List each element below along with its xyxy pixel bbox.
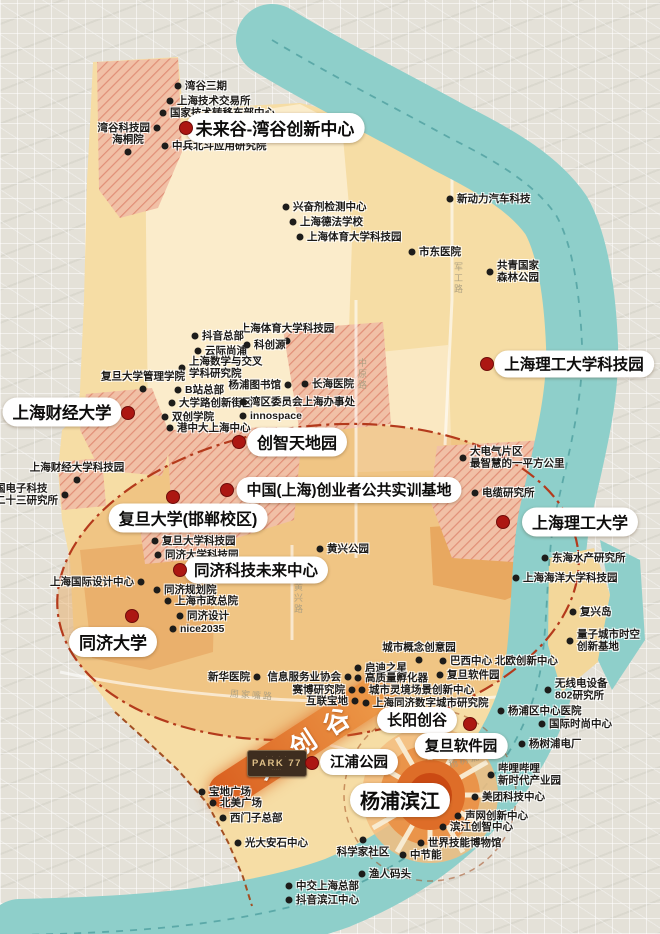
poi-dot (175, 83, 182, 90)
major-pill: 上海理工大学 (522, 508, 638, 537)
poi-label: 大电气片区 最智慧的一平方公里 (470, 446, 565, 471)
poi-label: 复旦软件园 (447, 669, 500, 681)
poi-label: 港中大上海中心 (177, 422, 251, 434)
poi-label: 互联宝地 (306, 695, 348, 707)
major-pill: 同济大学 (69, 627, 157, 657)
major-pill: 未来谷-湾谷创新中心 (186, 113, 365, 143)
poi-dot (360, 837, 367, 844)
poi-dot (460, 455, 467, 462)
poi-dot (138, 579, 145, 586)
poi-dot (513, 575, 520, 582)
poi-label: 抖音滨江中心 (296, 894, 359, 906)
poi-dot (447, 196, 454, 203)
poi-label: 渔人码头 (369, 868, 411, 880)
major-pill: 创智天地园 (247, 428, 347, 457)
park77-bottom-marks: ····· (272, 769, 283, 773)
poi-dot (154, 587, 161, 594)
poi-dot (355, 675, 362, 682)
poi-label: 海桐院 (112, 134, 144, 146)
poi-dot (498, 708, 505, 715)
poi-label: 高质量孵化器 (365, 672, 428, 684)
poi-dot (416, 657, 423, 664)
poi-label: 量子城市时空 创新基地 (577, 629, 640, 654)
major-pill: 中国(上海)创业者公共实训基地 (237, 477, 462, 503)
poi-label: 杨浦区中心医院 (508, 705, 582, 717)
poi-label: 上海国际设计中心 (50, 576, 134, 588)
poi-label: 杨树浦电厂 (529, 738, 582, 750)
major-dot (121, 406, 135, 420)
poi-dot (409, 249, 416, 256)
poi-label: innospace (250, 410, 302, 422)
poi-dot (192, 333, 199, 340)
poi-label: 新动力汽车科技 (457, 193, 531, 205)
major-dot (179, 121, 193, 135)
poi-label: 湾谷科技园 (98, 122, 151, 134)
poi-label: 哔哩哔哩 新时代产业园 (498, 763, 561, 788)
poi-label: 黄兴公园 (327, 543, 369, 555)
poi-label: 西门子总部 (230, 812, 283, 824)
poi-dot (545, 687, 552, 694)
poi-dot (125, 149, 132, 156)
major-pill: 复旦软件园 (415, 733, 508, 759)
poi-label: 科学家社区 (337, 846, 390, 858)
poi-label: 东海水产研究所 (552, 552, 626, 564)
poi-label: 兴奋剂检测中心 (293, 201, 367, 213)
poi-dot (162, 143, 169, 150)
poi-dot (199, 789, 206, 796)
poi-dot (167, 98, 174, 105)
poi-label: 科创源 (254, 339, 286, 351)
poi-label: 信息服务业协会 (268, 671, 342, 683)
poi-dot (440, 824, 447, 831)
poi-dot (352, 698, 359, 705)
poi-dot (472, 794, 479, 801)
poi-dot (160, 110, 167, 117)
poi-label: 世界技能博物馆 (428, 837, 502, 849)
poi-dot (195, 348, 202, 355)
park77-logo: · · · · PARK 77 ····· (247, 750, 307, 777)
poi-dot (519, 741, 526, 748)
poi-dot (165, 598, 172, 605)
poi-label: 长海医院 (312, 378, 354, 390)
major-dot (232, 435, 246, 449)
poi-label: 光大安石中心 (245, 837, 308, 849)
road-name-label: 黄兴路 (292, 582, 305, 615)
poi-label: 上海德法学校 (300, 216, 363, 228)
poi-dot (152, 538, 159, 545)
major-dot (125, 609, 139, 623)
poi-dot (177, 613, 184, 620)
map-stage: 大创谷 · · · · PARK 77 ····· 军工路中原路黄兴路周家嘴路杨… (0, 0, 660, 934)
poi-dot (567, 638, 574, 645)
poi-dot (472, 490, 479, 497)
poi-label: 上海市政总院 (175, 595, 238, 607)
poi-label: B站总部 (185, 384, 224, 396)
poi-label: 城市灵境场景创新中心 (369, 684, 474, 696)
poi-dot (440, 658, 447, 665)
poi-dot (349, 687, 356, 694)
poi-label: 新华医院 (208, 671, 250, 683)
poi-dot (162, 414, 169, 421)
poi-label: 市东医院 (419, 246, 461, 258)
major-dot (173, 563, 187, 577)
major-pill: 长阳创谷 (377, 707, 457, 733)
fuxing-island (548, 548, 610, 692)
poi-label: 上海数学与交叉 学科研究院 (189, 356, 263, 381)
poi-label: 上海海洋大学科技园 (523, 572, 618, 584)
poi-dot (400, 852, 407, 859)
poi-dot (487, 269, 494, 276)
poi-dot (240, 399, 247, 406)
poi-dot (210, 800, 217, 807)
poi-label: 复旦大学管理学院 (101, 371, 185, 383)
poi-dot (285, 382, 292, 389)
major-dot (496, 515, 510, 529)
poi-dot (140, 386, 147, 393)
major-pill: 上海财经大学 (3, 398, 122, 427)
poi-dot (175, 387, 182, 394)
major-pill: 上海理工大学科技园 (494, 351, 654, 378)
poi-label: 中交上海总部 (296, 880, 359, 892)
poi-label: 滨江创智中心 (450, 821, 513, 833)
poi-label: 上海技术交易所 (177, 95, 251, 107)
poi-dot (290, 219, 297, 226)
poi-label: nice2035 (180, 623, 224, 635)
major-pill: 复旦大学(邯郸校区) (109, 504, 268, 533)
poi-dot (220, 815, 227, 822)
poi-dot (437, 672, 444, 679)
poi-dot (488, 772, 495, 779)
poi-label: 美团科技中心 (482, 791, 545, 803)
poi-label: 复旦大学科技园 (162, 535, 236, 547)
poi-dot (286, 897, 293, 904)
poi-label: 杨浦图书馆 (229, 379, 282, 391)
poi-label: 共青国家 森林公园 (497, 260, 539, 285)
major-dot (220, 483, 234, 497)
poi-dot (240, 413, 247, 420)
poi-dot (539, 721, 546, 728)
poi-dot (317, 546, 324, 553)
poi-label: 上海财经大学科技园 (30, 462, 125, 474)
poi-label: 同济设计 (187, 610, 229, 622)
poi-dot (297, 234, 304, 241)
major-pill: 江浦公园 (320, 749, 398, 775)
poi-label: 中节能 (410, 849, 442, 861)
poi-label: 复兴岛 (580, 606, 612, 618)
poi-label: 无线电设备 802研究所 (555, 678, 608, 703)
poi-dot (62, 492, 69, 499)
poi-dot (254, 674, 261, 681)
poi-label: 抖音总部 (202, 330, 244, 342)
poi-label: 湾谷三期 (185, 80, 227, 92)
poi-label: 湾区委员会上海办事处 (250, 396, 355, 408)
poi-dot (286, 883, 293, 890)
major-dot (463, 717, 477, 731)
poi-label: 上海体育大学科技园 (240, 323, 335, 335)
poi-dot (283, 204, 290, 211)
major-dot (166, 490, 180, 504)
poi-label: 中国电子科技 第二十三研究所 (0, 483, 58, 508)
poi-label: 国际时尚中心 (549, 718, 612, 730)
major-dot (305, 756, 319, 770)
poi-label: 城市概念创意园 (382, 642, 456, 654)
poi-dot (235, 840, 242, 847)
poi-dot (363, 700, 370, 707)
poi-dot (345, 674, 352, 681)
major-pill: 杨浦滨江 (350, 783, 450, 817)
poi-label: 电缆研究所 (482, 487, 535, 499)
poi-dot (167, 425, 174, 432)
poi-label: 上海体育大学科技园 (307, 231, 402, 243)
road-name-label: 中原路 (356, 358, 369, 391)
poi-dot (154, 125, 161, 132)
major-dot (480, 357, 494, 371)
poi-dot (302, 381, 309, 388)
poi-dot (244, 342, 251, 349)
poi-dot (570, 609, 577, 616)
poi-dot (74, 477, 81, 484)
poi-label: 北美广场 (220, 797, 262, 809)
poi-dot (455, 813, 462, 820)
poi-dot (359, 687, 366, 694)
poi-dot (155, 552, 162, 559)
poi-dot (355, 665, 362, 672)
poi-dot (169, 400, 176, 407)
poi-dot (359, 871, 366, 878)
road-name-label: 军工路 (452, 262, 465, 295)
poi-dot (418, 840, 425, 847)
poi-dot (542, 555, 549, 562)
poi-dot (170, 626, 177, 633)
poi-label: 巴西中心 北欧创新中心 (450, 655, 558, 667)
major-pill: 同济科技未来中心 (184, 557, 328, 584)
